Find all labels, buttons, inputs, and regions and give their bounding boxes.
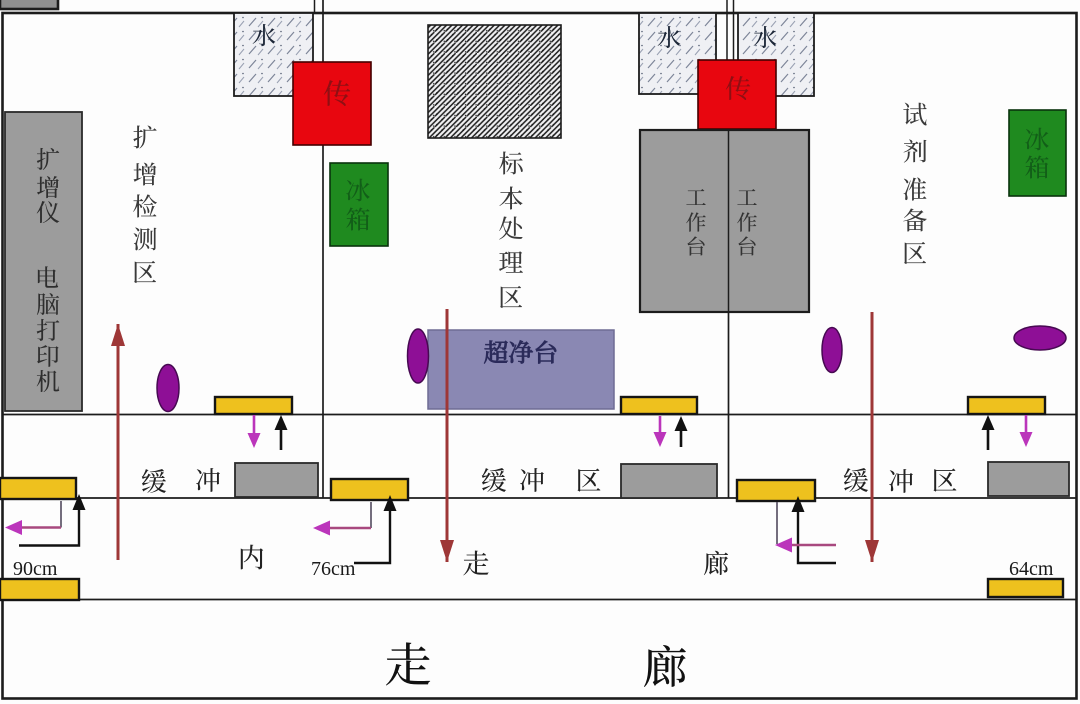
svg-text:76cm: 76cm <box>311 558 356 580</box>
svg-text:64cm: 64cm <box>1009 558 1054 580</box>
svg-text:90cm: 90cm <box>13 558 58 580</box>
